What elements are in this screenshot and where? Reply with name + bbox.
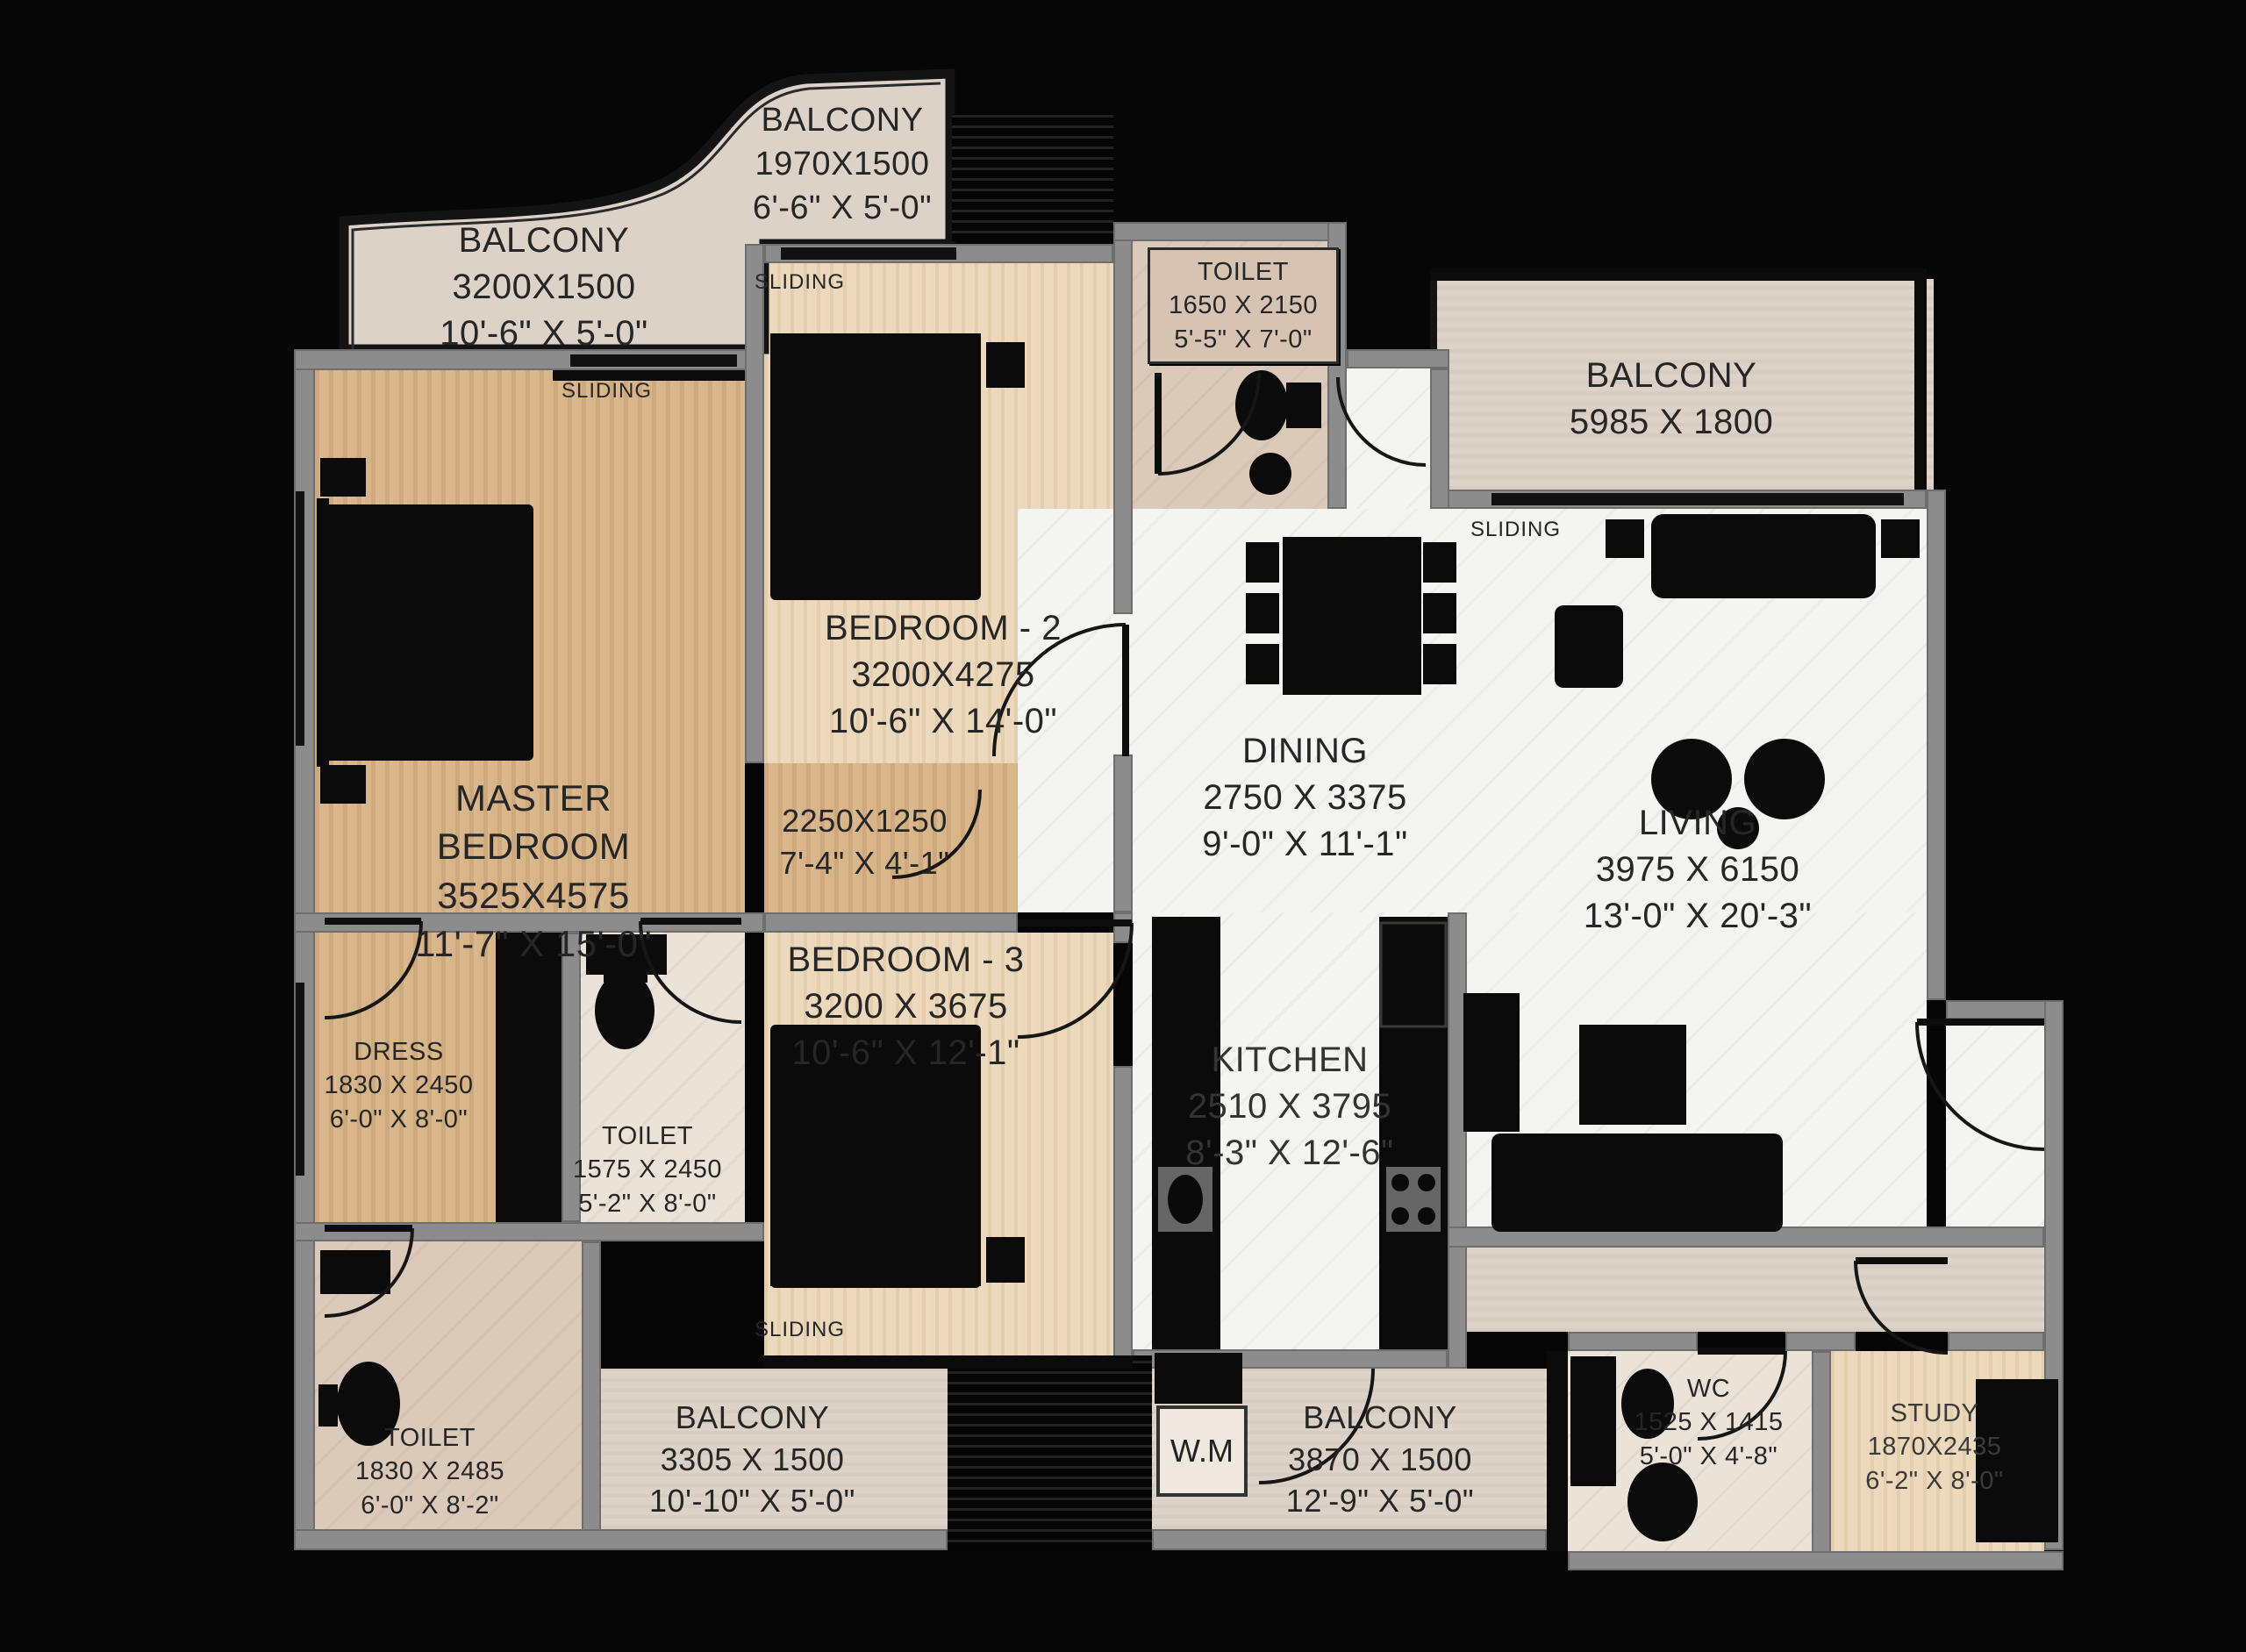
label-sliding-living: SLIDING xyxy=(1470,516,1628,544)
label-balcony-top-left: BALCONY 3200X1500 10'-6" X 5'-0" xyxy=(386,218,702,356)
room-dim-ft: 6'-0" X 8'-0" xyxy=(318,1103,480,1136)
room-dim-mm: 1650 X 2150 xyxy=(1150,289,1336,322)
room-name: STUDY xyxy=(1825,1397,2044,1430)
room-dim-ft: 5'-2" X 8'-0" xyxy=(560,1187,735,1220)
balcony-right-parapet-side xyxy=(1914,279,1927,490)
label-master-bedroom: MASTER BEDROOM 3525X4575 11'-7" X 15'-0" xyxy=(358,774,709,969)
room-dim-mm: 3200X4275 xyxy=(790,652,1097,698)
room-name: BALCONY xyxy=(386,218,702,264)
wall-entry-right xyxy=(1430,368,1449,509)
room-dim-ft: 10'-10" X 5'-0" xyxy=(605,1480,899,1522)
room-dim-ft: 5'-0" X 4'-8" xyxy=(1610,1440,1807,1473)
label-bedroom2: BEDROOM - 2 3200X4275 10'-6" X 14'-0" xyxy=(790,605,1097,744)
wall-kitchen-right xyxy=(1448,912,1467,1369)
room-dim-mm: 3870 X 1500 xyxy=(1235,1439,1525,1481)
wall-entry-top xyxy=(1347,349,1449,368)
wall-mid-left xyxy=(294,1222,764,1241)
service-shaft-top xyxy=(952,114,1113,241)
wall-bed2-right-upper xyxy=(1113,222,1133,614)
label-balcony-bl: BALCONY 3305 X 1500 10'-10" X 5'-0" xyxy=(605,1397,899,1522)
label-passage: 2250X1250 7'-4" X 4'-1" xyxy=(770,800,959,883)
wall-bed2-right-lower xyxy=(1113,754,1133,912)
label-bedroom3: BEDROOM - 3 3200 X 3675 10'-6" X 12'-1" xyxy=(755,937,1057,1076)
room-name: DINING xyxy=(1171,728,1439,775)
room-dim-mm: 3305 X 1500 xyxy=(605,1439,899,1481)
wall-bed3-right-upper xyxy=(1113,912,1133,943)
balcony-right-parapet-top xyxy=(1430,268,1927,281)
wall-bed3-top xyxy=(764,912,1018,933)
service-shaft-bottom xyxy=(948,1355,1152,1550)
wardrobe-bedroom3 xyxy=(764,1355,1133,1369)
corridor-floor xyxy=(1448,1246,2044,1332)
wall-master-bed2 xyxy=(745,244,764,763)
room-dim-mm: 2750 X 3375 xyxy=(1171,775,1439,821)
room-dim-ft: 11'-7" X 15'-0" xyxy=(358,919,709,968)
label-balcony-right: BALCONY 5985 X 1800 xyxy=(1527,353,1816,446)
room-name: BEDROOM - 2 xyxy=(790,605,1097,652)
label-toilet-mid: TOILET 1575 X 2450 5'-2" X 8'-0" xyxy=(560,1119,735,1220)
room-dim-ft: 5'-5" X 7'-0" xyxy=(1150,323,1336,356)
wall-bottom-right xyxy=(1568,1551,2064,1570)
window-living-top xyxy=(1491,493,1904,505)
room-dim-mm: 2250X1250 xyxy=(770,800,959,842)
label-balcony-bm: BALCONY 3870 X 1500 12'-9" X 5'-0" xyxy=(1235,1397,1525,1522)
room-dim-ft: 13'-0" X 20'-3" xyxy=(1553,893,1842,940)
room-name: WC xyxy=(1610,1372,1807,1405)
wall-exterior-right xyxy=(2044,1000,2064,1550)
floor-plan-page: { "plan": { "title": "3 BHK + Study Apar… xyxy=(0,0,2246,1652)
label-dining: DINING 2750 X 3375 9'-0" X 11'-1" xyxy=(1171,728,1439,867)
room-dim-ft: 10'-6" X 5'-0" xyxy=(386,311,702,357)
label-study: STUDY 1870X2435 6'-2" X 8'-0" xyxy=(1825,1397,2044,1498)
room-dim-ft: 9'-0" X 11'-1" xyxy=(1171,821,1439,868)
room-dim-mm: 3200 X 3675 xyxy=(755,983,1057,1030)
label-sliding-master: SLIDING xyxy=(561,377,719,405)
wall-wc-top-b xyxy=(1785,1332,1856,1351)
room-dim-mm: 1870X2435 xyxy=(1825,1430,2044,1463)
room-dim-ft: 7'-4" X 4'-1" xyxy=(770,842,959,884)
window-left-2 xyxy=(296,983,304,1176)
window-bedroom2-top xyxy=(781,247,956,260)
room-dim-ft: 10'-6" X 14'-0" xyxy=(790,698,1097,745)
room-dim-ft: 10'-6" X 12'-1" xyxy=(755,1030,1057,1076)
wall-bed3-right-lower xyxy=(1113,1066,1133,1369)
label-sliding-bedroom3: SLIDING xyxy=(755,1316,912,1344)
room-dim-ft: 6'-0" X 8'-2" xyxy=(338,1489,522,1522)
room-dim-mm: 1575 X 2450 xyxy=(560,1153,735,1186)
wardrobe-dress xyxy=(496,933,561,1222)
wall-living-bottom xyxy=(1448,1226,2044,1248)
room-dim-mm: 5985 X 1800 xyxy=(1527,399,1816,446)
room-dim-mm: 3200X1500 xyxy=(386,264,702,311)
room-dim-ft: 8'-3" X 12'-6" xyxy=(1158,1130,1421,1176)
room-name: TOILET xyxy=(560,1119,735,1153)
laundry-unit xyxy=(1155,1353,1242,1404)
room-dim-ft: 6'-2" X 8'-0" xyxy=(1825,1464,2044,1498)
room-dim-mm: 3975 X 6150 xyxy=(1553,847,1842,893)
room-living-floor xyxy=(1467,912,1927,1226)
room-dim-mm: 1830 X 2485 xyxy=(338,1455,522,1488)
entry-nook-floor xyxy=(1946,1019,2044,1246)
room-name: BALCONY xyxy=(605,1397,899,1439)
room-dim-ft: 6'-6" X 5'-0" xyxy=(728,186,956,230)
room-name: DRESS xyxy=(318,1035,480,1069)
room-name: TOILET xyxy=(1150,255,1336,289)
label-toilet-top: TOILET 1650 X 2150 5'-5" X 7'-0" xyxy=(1148,247,1339,364)
room-name: BALCONY xyxy=(1235,1397,1525,1439)
label-kitchen: KITCHEN 2510 X 3795 8'-3" X 12'-6" xyxy=(1158,1037,1421,1176)
room-name: BALCONY xyxy=(1527,353,1816,399)
wall-toilet-bl-right xyxy=(582,1241,601,1531)
room-name: TOILET xyxy=(338,1421,522,1455)
label-sliding-bedroom2: SLIDING xyxy=(755,268,912,297)
wall-bottom-left xyxy=(294,1529,948,1550)
label-toilet-bl: TOILET 1830 X 2485 6'-0" X 8'-2" xyxy=(338,1421,522,1522)
room-dim-mm: 1525 X 1415 xyxy=(1610,1405,1807,1439)
room-name: BEDROOM - 3 xyxy=(755,937,1057,983)
label-wc: WC 1525 X 1415 5'-0" X 4'-8" xyxy=(1610,1372,1807,1473)
window-left-1 xyxy=(296,491,304,746)
label-dress: DRESS 1830 X 2450 6'-0" X 8'-0" xyxy=(318,1035,480,1136)
wall-living-right xyxy=(1927,490,1946,1000)
duct-balcony-wc xyxy=(1547,1351,1568,1551)
washing-machine-label: W.M xyxy=(1170,1433,1234,1470)
room-dim-mm: 2510 X 3795 xyxy=(1158,1083,1421,1130)
room-name: MASTER BEDROOM xyxy=(358,774,709,871)
washing-machine-box: W.M xyxy=(1156,1405,1248,1497)
wall-bottom-mid xyxy=(1152,1529,1547,1550)
label-balcony-top: BALCONY 1970X1500 6'-6" X 5'-0" xyxy=(728,98,956,230)
wall-study-top xyxy=(1948,1332,2044,1351)
entry-lobby-floor xyxy=(1347,368,1430,509)
room-name: KITCHEN xyxy=(1158,1037,1421,1083)
room-dim-mm: 1830 X 2450 xyxy=(318,1069,480,1102)
room-name: LIVING xyxy=(1553,800,1842,847)
wall-wc-top-a xyxy=(1568,1332,1698,1351)
room-dim-mm: 1970X1500 xyxy=(728,142,956,186)
room-dim-mm: 3525X4575 xyxy=(358,871,709,919)
wall-toilet-top-north xyxy=(1113,222,1347,241)
room-dim-ft: 12'-9" X 5'-0" xyxy=(1235,1480,1525,1522)
room-name: BALCONY xyxy=(728,98,956,142)
label-living: LIVING 3975 X 6150 13'-0" X 20'-3" xyxy=(1553,800,1842,939)
